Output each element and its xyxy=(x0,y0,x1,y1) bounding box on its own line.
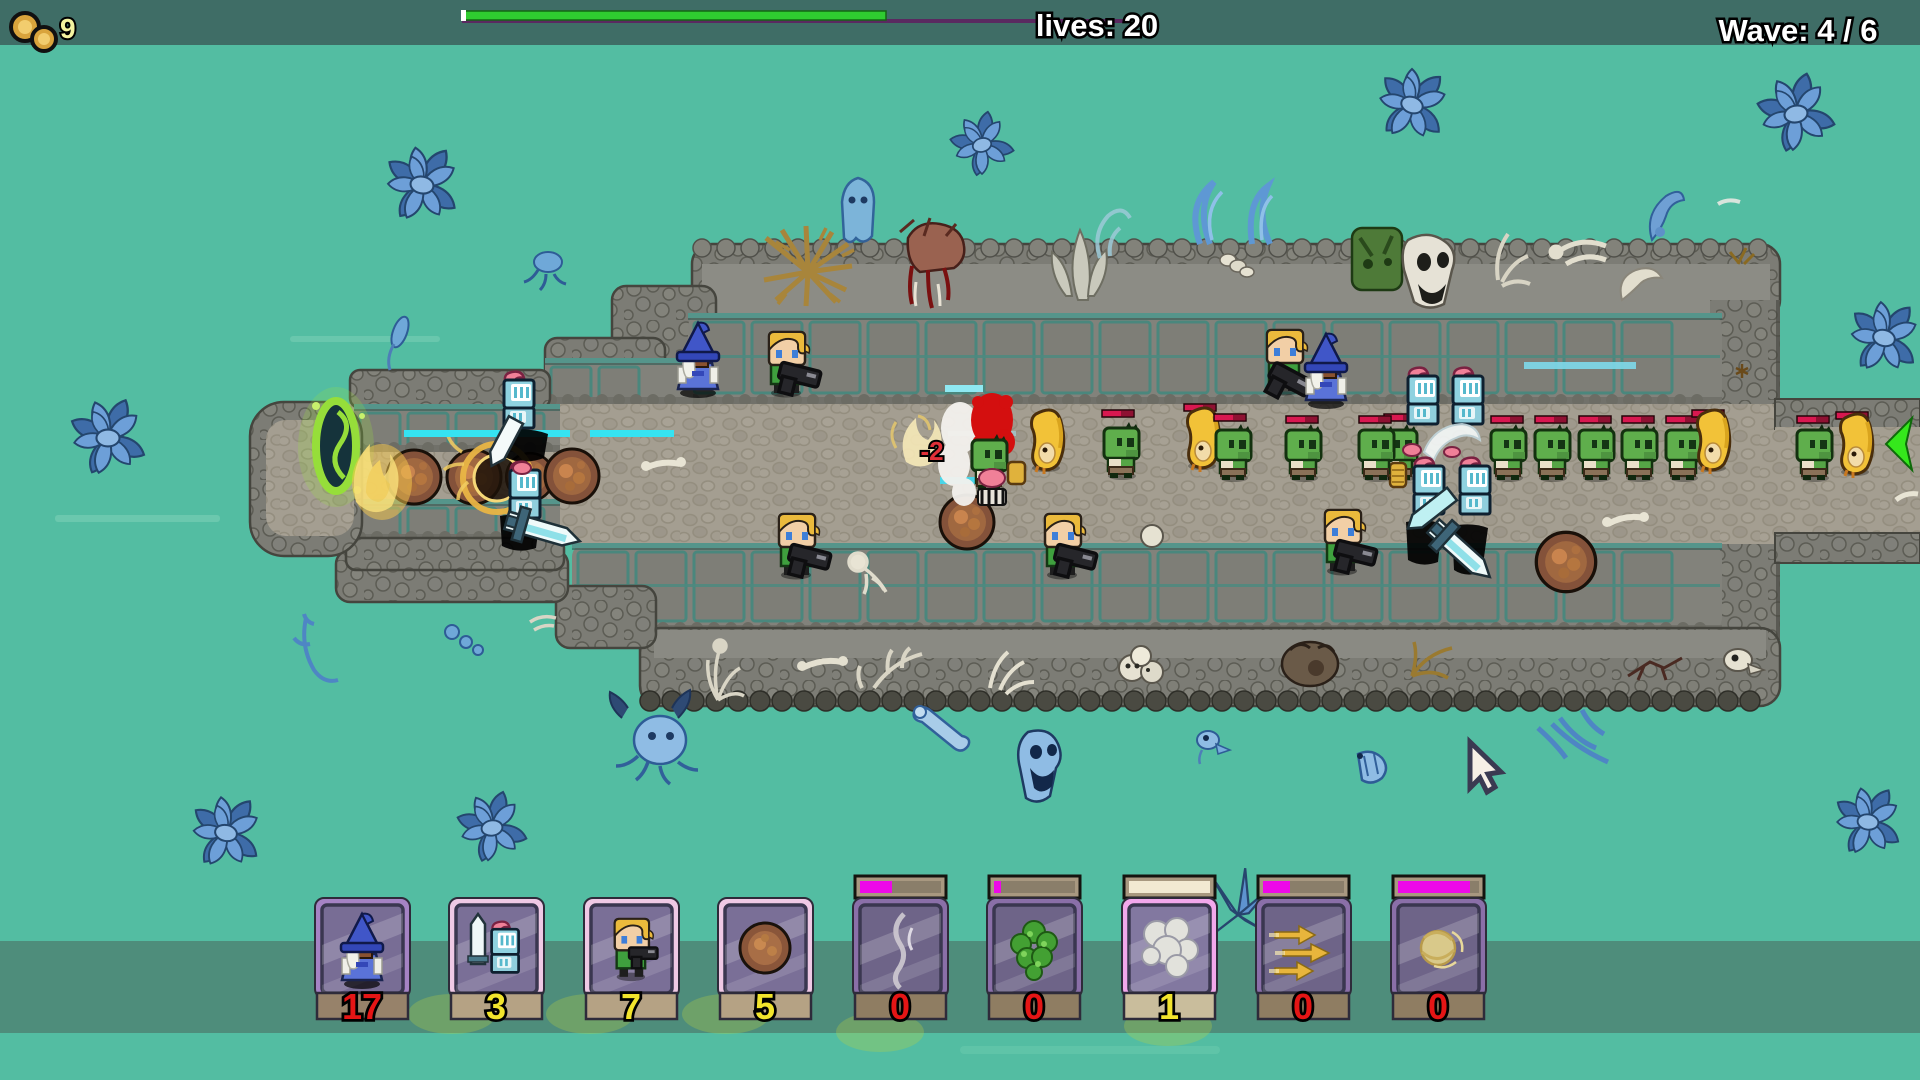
svg-text:0: 0 xyxy=(1024,986,1044,1027)
svg-text:7: 7 xyxy=(621,986,641,1027)
svg-text:3: 3 xyxy=(486,986,506,1027)
svg-text:0: 0 xyxy=(1293,986,1313,1027)
svg-text:lives: 20: lives: 20 xyxy=(1036,8,1158,43)
svg-text:17: 17 xyxy=(342,986,382,1027)
svg-text:5: 5 xyxy=(755,986,775,1027)
svg-text:-2: -2 xyxy=(920,436,943,466)
svg-text:0: 0 xyxy=(1428,986,1448,1027)
svg-text:Wave: 4 / 6: Wave: 4 / 6 xyxy=(1718,13,1877,48)
svg-text:0: 0 xyxy=(890,986,910,1027)
svg-text:9: 9 xyxy=(60,13,76,44)
svg-text:1: 1 xyxy=(1159,986,1179,1027)
